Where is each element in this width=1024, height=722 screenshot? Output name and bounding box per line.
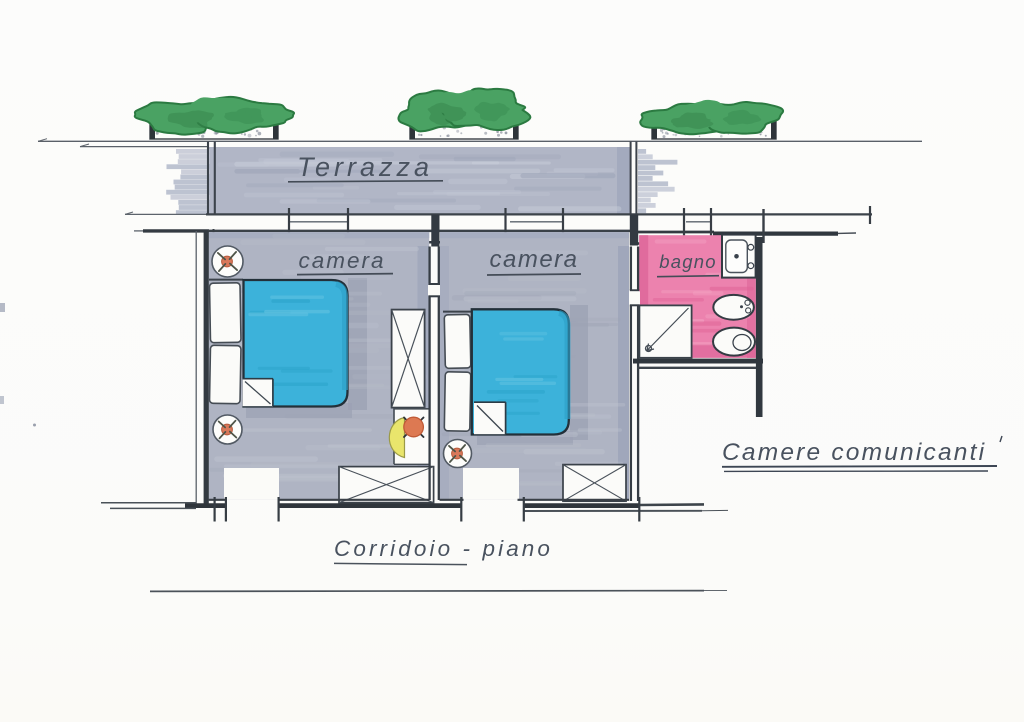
svg-text:Camere comunicanti: Camere comunicanti — [722, 439, 986, 466]
svg-text:camera: camera — [298, 248, 385, 273]
svg-text:camera: camera — [489, 246, 578, 273]
svg-text:bagno: bagno — [659, 251, 716, 272]
svg-text:Corridoio - piano: Corridoio - piano — [334, 536, 553, 561]
svg-text:Terrazza: Terrazza — [297, 152, 433, 182]
